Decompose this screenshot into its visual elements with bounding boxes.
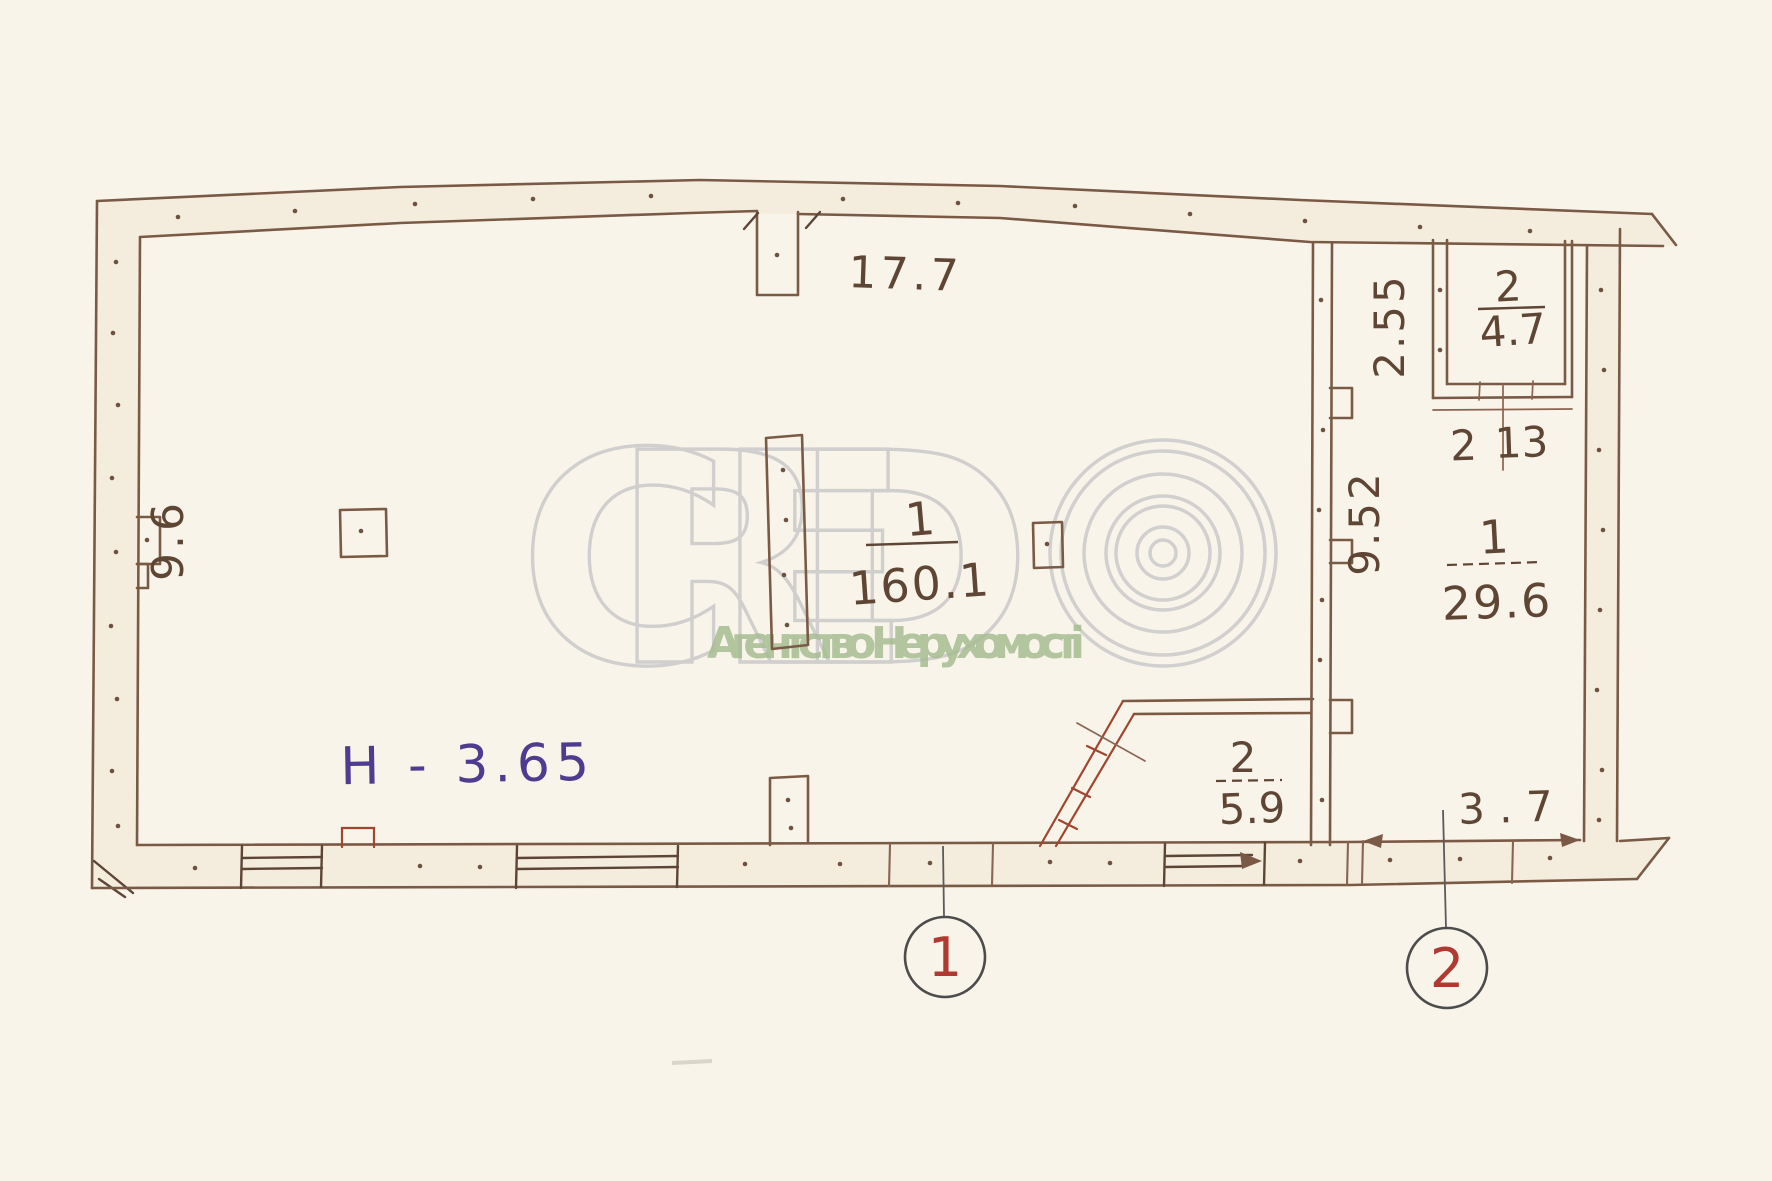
ceiling-height-note: H - 3.65 [340,733,596,797]
watermark-agency-text: Агентство Нерухомості [707,618,1087,669]
room-closet-number: 2 [1493,261,1522,311]
dim-right-length: 9.52 [1340,470,1389,576]
dim-closet-width-frac: 13 [1494,417,1549,468]
dim-corridor-width: 2.55 [1365,273,1414,379]
scan-smudge [672,1061,712,1063]
room-closet-area: 4.7 [1478,304,1548,358]
room-main-number: 1 [903,491,937,547]
scanned-floor-plan-page: CRED Агентство Нерухомості [0,0,1772,1181]
marker-1-number: 1 [928,926,962,989]
room-vestibule-area: 5.9 [1218,783,1286,834]
room-right-area: 29.6 [1441,573,1553,631]
room-vestibule-number: 2 [1230,733,1257,782]
room-right-number: 1 [1478,509,1510,564]
dim-closet-width-int: 2 [1449,421,1477,471]
dim-left-height: 9.6 [143,499,194,581]
marker-2-number: 2 [1430,937,1464,1000]
dim-top-width: 17.7 [848,247,964,302]
room-main-area: 160.1 [847,552,992,616]
floor-plan-svg: CRED Агентство Нерухомості [0,0,1772,1181]
dim-bottom-right: 3.7 [1457,781,1567,834]
